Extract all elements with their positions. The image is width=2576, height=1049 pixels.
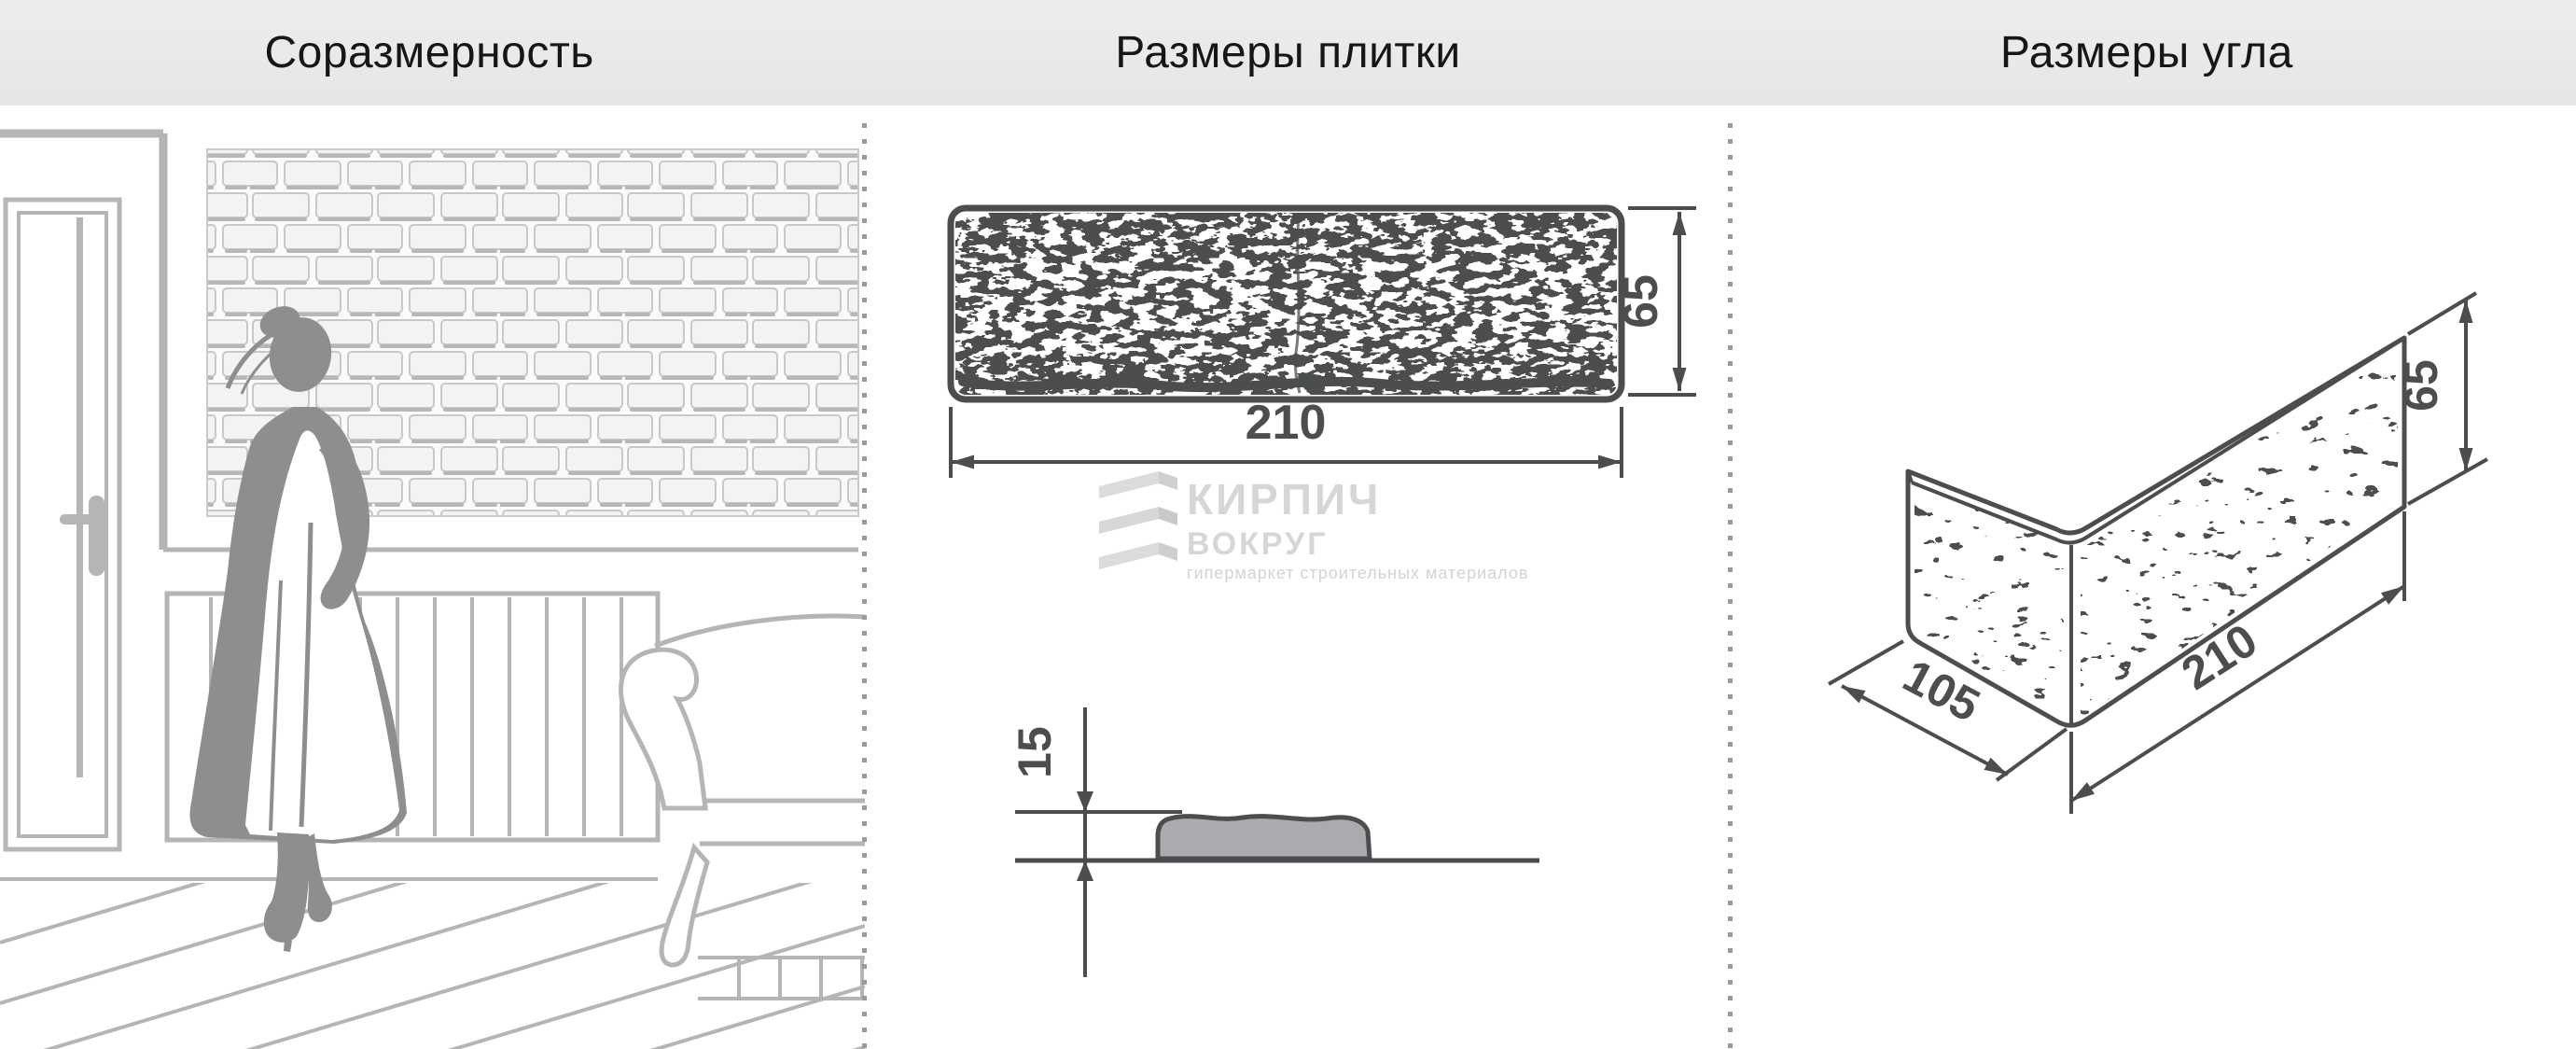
panel-divider-left [862,123,867,1049]
watermark-logo: КИРПИЧ ВОКРУГ гипермаркет строительных м… [1099,471,1528,582]
watermark-tagline: гипермаркет строительных материалов [1187,564,1528,582]
screenshot-canvas: Соразмерность Размеры плитки Размеры угл… [0,0,2576,1049]
tile-height-label: 65 [1614,274,1668,329]
sofa-arm [621,650,705,808]
sofa-leg [661,847,707,965]
panel-divider-right [1728,123,1733,1049]
door-trim-strip [77,217,83,777]
watermark-brand-line1: КИРПИЧ [1187,475,1381,524]
tile-thickness-label: 15 [1009,726,1061,778]
tile-dimensions-panel: КИРПИЧ ВОКРУГ гипермаркет строительных м… [863,0,1731,1049]
tile-front-view [951,208,1622,399]
tile-profile-shape [1158,817,1370,859]
sofa-back [655,616,865,646]
tile-width-label: 210 [1246,396,1327,450]
corner-dimensions-panel: 65 210 105 [1731,0,2576,1049]
watermark-brand-line2: ВОКРУГ [1187,526,1329,562]
floor-planks [0,683,865,1049]
shoes [264,832,332,952]
door [6,200,119,849]
proportion-scene [0,0,865,1049]
brick-zigzag-icon [1099,471,1177,569]
tile-side-profile: 15 [1009,707,1539,977]
corner-height-label: 65 [2395,359,2447,412]
corner-tile-3d [1908,338,2404,725]
